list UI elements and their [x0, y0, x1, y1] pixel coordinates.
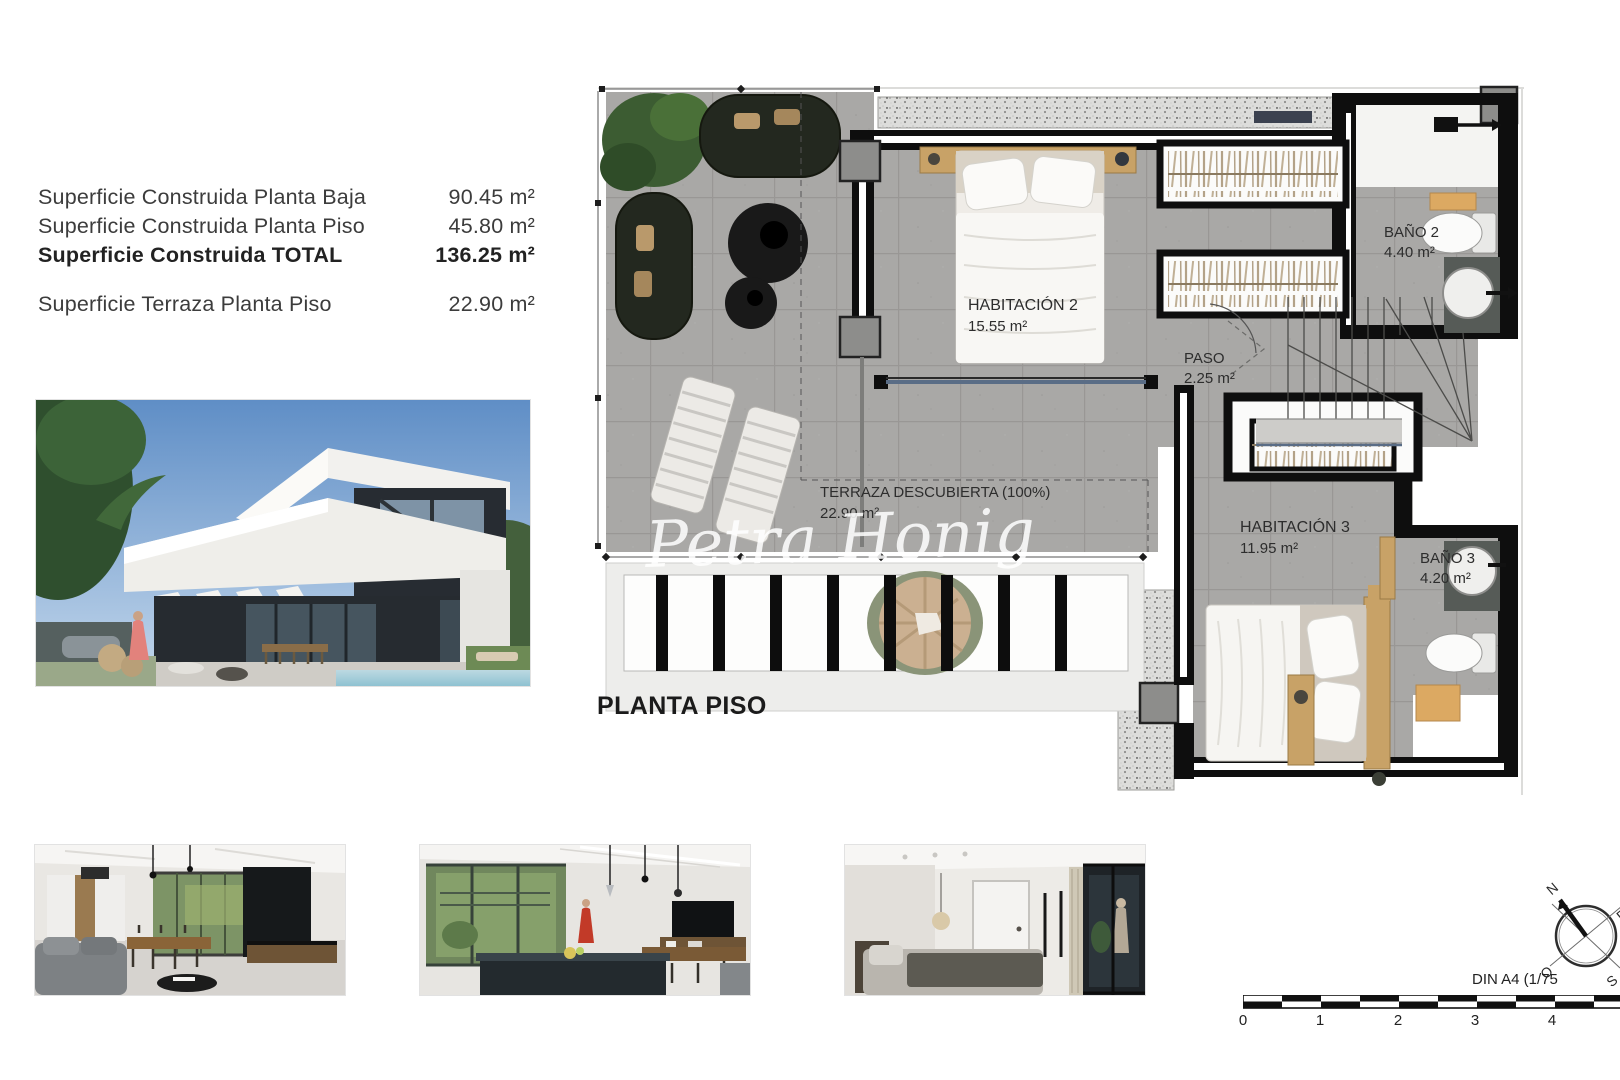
interior-photo-kitchen	[420, 845, 750, 995]
summary-label: Superficie Construida Planta Baja	[38, 183, 410, 212]
interior-living-render	[35, 845, 345, 995]
surface-summary: Superficie Construida Planta Baja 90.45 …	[38, 183, 535, 319]
summary-value: 136.25 m²	[410, 241, 535, 270]
summary-value: 90.45 m²	[410, 183, 535, 212]
room-area: 15.55 m²	[968, 318, 1027, 335]
watermark: Petra Honig	[643, 495, 1036, 583]
summary-label: Superficie Terraza Planta Piso	[38, 290, 410, 319]
toilet-icon	[1426, 633, 1496, 673]
scale-tick: 4	[1542, 1012, 1562, 1029]
door-leaf	[1380, 537, 1395, 599]
compass-n: N	[1543, 879, 1561, 898]
plan-title: PLANTA PISO	[597, 692, 767, 721]
summary-row: Superficie Construida Planta Baja 90.45 …	[38, 183, 535, 212]
interior-kitchen-render	[420, 845, 750, 995]
sofa	[700, 95, 840, 177]
villa-exterior-render	[36, 400, 530, 686]
brochure-page: { "summary": { "rows": [ {"label": "Supe…	[0, 0, 1620, 1080]
summary-row-total: Superficie Construida TOTAL 136.25 m²	[38, 241, 535, 270]
bath-mat	[1416, 685, 1460, 721]
room-area: 4.40 m²	[1384, 244, 1435, 261]
summary-label: Superficie Construida TOTAL	[38, 241, 410, 270]
scale-format-label: DIN A4 (1/75	[1472, 971, 1558, 988]
pergola-below	[606, 563, 1144, 711]
scale-tick: 3	[1465, 1012, 1485, 1029]
room-area: 2.25 m²	[1184, 370, 1235, 387]
room-area: 11.95 m²	[1240, 540, 1298, 557]
room-label: HABITACIÓN 2	[968, 295, 1078, 314]
compass-e: E	[1613, 906, 1620, 924]
side-table	[1288, 675, 1314, 765]
scale-tick: 1	[1310, 1012, 1330, 1029]
interior-photo-living	[35, 845, 345, 995]
compass-s: S	[1603, 972, 1620, 990]
scale-tick: 2	[1388, 1012, 1408, 1029]
bath-mat	[1430, 193, 1476, 210]
summary-label: Superficie Construida Planta Piso	[38, 212, 410, 241]
room-label: BAÑO 3	[1420, 550, 1475, 567]
sink-icon	[1443, 268, 1493, 318]
summary-row: Superficie Terraza Planta Piso 22.90 m²	[38, 290, 535, 319]
interior-bedroom-render	[845, 845, 1145, 995]
summary-row: Superficie Construida Planta Piso 45.80 …	[38, 212, 535, 241]
villa-exterior-photo	[36, 400, 530, 686]
room-label: PASO	[1184, 350, 1225, 367]
room-label: BAÑO 2	[1384, 224, 1439, 241]
scale-bar	[1243, 995, 1620, 1009]
summary-value: 22.90 m²	[410, 290, 535, 319]
sofa	[616, 193, 692, 339]
summary-value: 45.80 m²	[410, 212, 535, 241]
room-area: 4.20 m²	[1420, 570, 1471, 587]
scale-bar-graphic	[1243, 995, 1620, 1009]
scale-tick: 0	[1233, 1012, 1253, 1029]
interior-photo-bedroom	[845, 845, 1145, 995]
room-label: HABITACIÓN 3	[1240, 517, 1350, 536]
